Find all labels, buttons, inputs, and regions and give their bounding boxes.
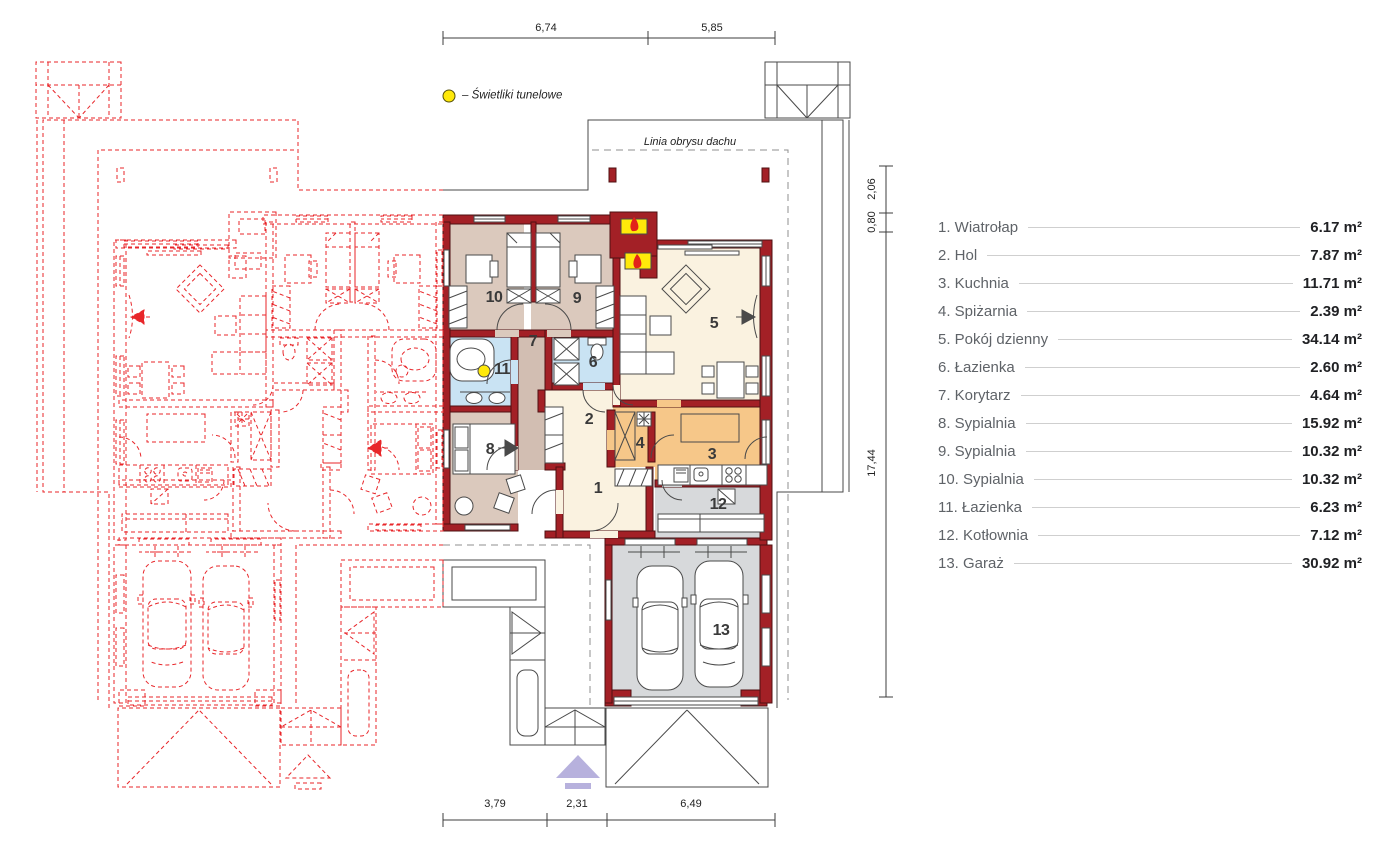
plan-room-number-9: 9: [573, 290, 581, 308]
leader-line: [1021, 395, 1301, 396]
leader-line: [1027, 311, 1300, 312]
plan-room-number-6: 6: [589, 354, 597, 372]
dimension-top-2: 5,85: [701, 22, 722, 34]
main-floorplan: [443, 62, 850, 789]
room-list-item: 4. Spiżarnia2.39 m²: [938, 297, 1362, 325]
leader-line: [987, 255, 1300, 256]
dimension-bottom-1: 3,79: [484, 798, 505, 810]
room-list-item: 12. Kotłownia7.12 m²: [938, 521, 1362, 549]
dimension-bottom-2: 2,31: [566, 798, 587, 810]
room-list-item: 5. Pokój dzienny34.14 m²: [938, 325, 1362, 353]
leader-line: [1028, 227, 1300, 228]
room-list-item: 8. Sypialnia15.92 m²: [938, 409, 1362, 437]
plan-room-number-11: 11: [494, 361, 510, 379]
dimension-right-3: 17,44: [866, 449, 878, 477]
plan-room-number-10: 10: [486, 289, 503, 307]
entrance-arrow-icon: [556, 755, 600, 789]
plan-room-number-5: 5: [710, 315, 718, 333]
plan-room-number-7: 7: [529, 333, 537, 351]
plan-room-number-4: 4: [636, 435, 644, 453]
roof-outline-label: Linia obrysu dachu: [644, 136, 736, 148]
plan-room-number-2: 2: [585, 411, 593, 429]
dimension-right-2: 0,80: [866, 211, 878, 232]
room-list-item: 6. Łazienka2.60 m²: [938, 353, 1362, 381]
leader-line: [1026, 451, 1292, 452]
room-list-item: 11. Łazienka6.23 m²: [938, 493, 1362, 521]
mirrored-floorplan: [36, 62, 443, 789]
room-list: 1. Wiatrołap6.17 m² 2. Hol7.87 m² 3. Kuc…: [938, 213, 1362, 577]
plan-room-number-1: 1: [594, 480, 602, 498]
room-list-item: 10. Sypialnia10.32 m²: [938, 465, 1362, 493]
room-list-item: 1. Wiatrołap6.17 m²: [938, 213, 1362, 241]
leader-line: [1058, 339, 1292, 340]
plan-room-number-8: 8: [486, 441, 494, 459]
room-list-item: 9. Sypialnia10.32 m²: [938, 437, 1362, 465]
dimension-right-1: 2,06: [866, 178, 878, 199]
leader-line: [1034, 479, 1292, 480]
leader-line: [1025, 367, 1301, 368]
room-list-item: 3. Kuchnia11.71 m²: [938, 269, 1362, 297]
leader-line: [1014, 563, 1292, 564]
chimney: [765, 62, 850, 118]
leader-line: [1038, 535, 1300, 536]
leader-line: [1019, 283, 1293, 284]
skylight-legend-label: – Świetliki tunelowe: [462, 89, 562, 101]
leader-line: [1032, 507, 1300, 508]
plan-room-number-12: 12: [710, 496, 727, 514]
plan-room-number-13: 13: [713, 622, 730, 640]
dimension-top-1: 6,74: [535, 22, 556, 34]
room-list-item: 7. Korytarz4.64 m²: [938, 381, 1362, 409]
skylight-legend-icon: [443, 90, 455, 102]
floorplan-canvas: – Świetliki tunelowe Linia obrysu dachu …: [0, 0, 1400, 864]
leader-line: [1026, 423, 1292, 424]
room-list-item: 2. Hol7.87 m²: [938, 241, 1362, 269]
car-icon: [633, 566, 687, 690]
room-list-item: 13. Garaż30.92 m²: [938, 549, 1362, 577]
dimension-bottom-3: 6,49: [680, 798, 701, 810]
plan-room-number-3: 3: [708, 446, 716, 464]
